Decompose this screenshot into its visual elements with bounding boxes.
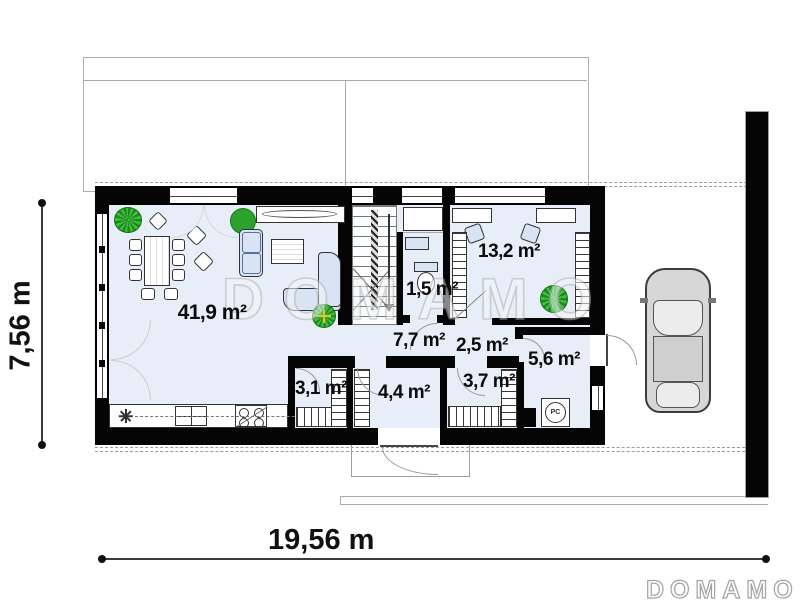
terrace-step-line xyxy=(340,504,768,505)
room-label-wardrobe: 3,7 m² xyxy=(463,371,515,393)
dim-dot xyxy=(38,199,46,207)
dining-chair xyxy=(172,239,185,251)
exterior-wall-left-corner xyxy=(95,398,109,445)
wardrobe-shelf xyxy=(448,406,501,427)
window-entry xyxy=(590,386,605,410)
wc-top-line xyxy=(403,232,443,233)
car-windshield xyxy=(653,300,703,336)
dim-dot xyxy=(38,441,46,449)
exterior-wall-bottom xyxy=(95,428,378,445)
plant-icon xyxy=(114,207,142,233)
car-mirror xyxy=(708,298,716,303)
dim-label-width: 19,56 m xyxy=(268,524,374,557)
exterior-wall-right xyxy=(590,410,605,445)
room-label-storage: 4,4 m² xyxy=(378,382,430,404)
dim-dot xyxy=(98,555,106,563)
dim-label-height: 7,56 m xyxy=(5,278,38,374)
car-rear-window xyxy=(656,382,700,408)
mullion xyxy=(99,360,105,367)
tv-console xyxy=(256,206,345,223)
exterior-wall-bottom xyxy=(440,428,605,445)
shoe-cabinet xyxy=(524,408,536,427)
wall-hall-bottom xyxy=(487,356,519,368)
dim-line-horizontal xyxy=(101,558,768,560)
room-label-living: 41,9 m² xyxy=(178,301,247,325)
door-swing xyxy=(607,335,637,365)
floor-plan-canvas: PC 7,56 m 19,56 m 41,9 m² 13,2 m² 1,5 m²… xyxy=(0,0,800,611)
boiler-unit: PC xyxy=(541,398,570,427)
dim-line-vertical xyxy=(41,203,43,446)
dining-chair xyxy=(172,254,185,266)
stair-landing xyxy=(403,207,443,231)
terrace-step-line xyxy=(340,496,752,497)
mullion xyxy=(99,284,105,291)
brand-logo: DOMAMO xyxy=(646,576,799,605)
desk xyxy=(536,208,576,223)
desk xyxy=(452,208,492,223)
dining-chair xyxy=(129,269,142,281)
roof-outline-line xyxy=(83,80,587,81)
window-office xyxy=(455,186,545,205)
porch-outline xyxy=(351,445,470,477)
glazed-wall-left xyxy=(95,214,109,398)
exterior-wall-left-corner xyxy=(95,186,109,214)
wall-pantry-storage xyxy=(347,356,353,428)
washbasin xyxy=(405,237,429,250)
dining-chair xyxy=(164,288,178,300)
coffee-table xyxy=(271,239,304,264)
car-mirror xyxy=(640,298,648,303)
room-label-office: 13,2 m² xyxy=(478,241,540,263)
carport-pillar xyxy=(746,112,768,497)
wall-hall-bottom xyxy=(288,356,355,368)
room-label-pantry: 3,1 m² xyxy=(295,378,347,400)
dining-chair xyxy=(129,239,142,251)
dining-chair xyxy=(141,288,155,300)
dining-table xyxy=(144,236,170,286)
dining-chair xyxy=(129,254,142,266)
car-roof xyxy=(653,336,703,382)
exterior-wall-right xyxy=(590,366,605,386)
dim-dot xyxy=(762,555,770,563)
dining-chair xyxy=(172,269,185,281)
room-label-corridor: 2,5 m² xyxy=(456,335,508,357)
wall-wardrobe-entry xyxy=(517,362,524,428)
overhang-dashed-top xyxy=(95,182,747,183)
wall-pantry-left xyxy=(288,356,295,428)
room-label-hall: 7,7 m² xyxy=(393,330,445,352)
boiler-label: PC xyxy=(545,402,566,423)
mullion xyxy=(99,246,105,253)
mullion xyxy=(99,322,105,329)
window-living-top xyxy=(170,186,237,205)
wall-storage-wardrobe xyxy=(440,356,447,428)
terrace-step-edge xyxy=(340,496,341,505)
window-landing xyxy=(402,186,442,205)
roof-outline xyxy=(83,57,589,192)
kitchen-sink-icon xyxy=(119,409,133,423)
car xyxy=(645,268,711,413)
tv-console-inlay xyxy=(262,210,337,218)
window-stairwell xyxy=(352,186,373,205)
roof-outline-line xyxy=(345,80,346,190)
room-label-entry: 5,6 m² xyxy=(528,349,580,371)
room-label-wc: 1,5 m² xyxy=(406,279,458,301)
